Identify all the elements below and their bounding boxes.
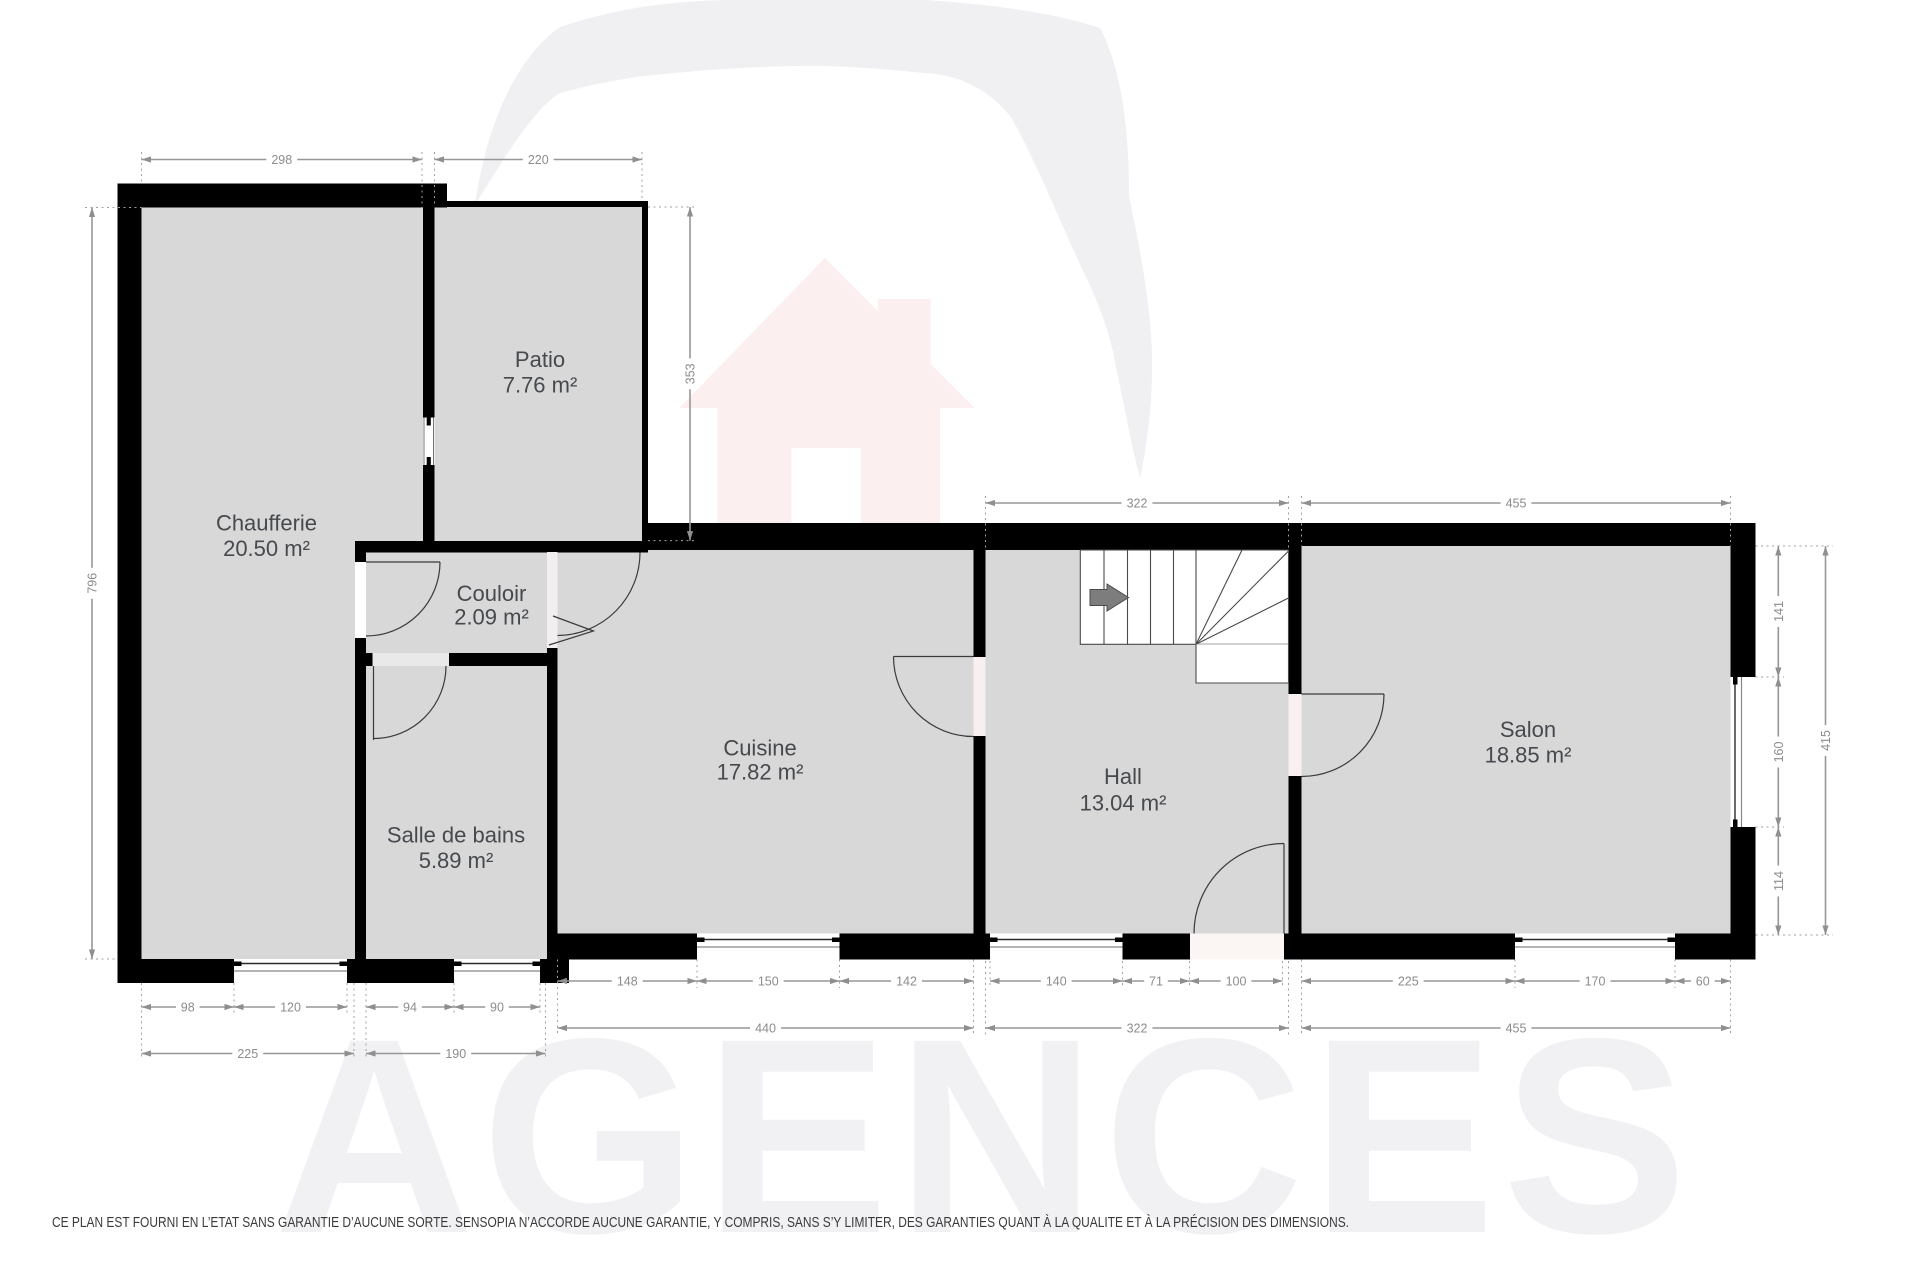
svg-text:190: 190 [445,1047,466,1061]
svg-text:440: 440 [755,1022,776,1036]
svg-text:225: 225 [1398,975,1419,989]
svg-text:225: 225 [237,1047,258,1061]
svg-text:220: 220 [528,153,549,167]
svg-text:141: 141 [1772,601,1786,622]
svg-text:94: 94 [403,1001,417,1015]
svg-text:Cuisine: Cuisine [723,736,796,761]
svg-text:142: 142 [896,975,917,989]
svg-text:170: 170 [1585,975,1606,989]
svg-text:90: 90 [490,1001,504,1015]
svg-text:322: 322 [1127,1022,1148,1036]
svg-text:Couloir: Couloir [457,581,527,606]
svg-text:148: 148 [617,975,638,989]
svg-text:Salon: Salon [1500,717,1556,742]
svg-text:114: 114 [1772,871,1786,891]
svg-text:298: 298 [271,153,292,167]
svg-text:Hall: Hall [1104,764,1142,789]
svg-text:100: 100 [1226,975,1247,989]
svg-text:71: 71 [1149,975,1163,989]
svg-text:796: 796 [86,573,100,594]
svg-text:60: 60 [1696,975,1710,989]
svg-text:Patio: Patio [515,347,565,372]
svg-text:5.89 m²: 5.89 m² [419,848,494,873]
svg-text:Salle de bains: Salle de bains [387,823,525,848]
svg-text:150: 150 [758,975,779,989]
svg-text:98: 98 [181,1001,195,1015]
svg-text:17.82 m²: 17.82 m² [717,760,804,785]
svg-text:455: 455 [1506,497,1527,511]
svg-text:415: 415 [1819,730,1833,751]
svg-text:455: 455 [1506,1022,1527,1036]
svg-text:Chaufferie: Chaufferie [216,511,317,536]
svg-text:18.85 m²: 18.85 m² [1485,743,1572,768]
svg-text:353: 353 [684,363,698,384]
svg-text:120: 120 [280,1001,301,1015]
svg-text:2.09 m²: 2.09 m² [454,605,529,630]
svg-text:AGENCES: AGENCES [274,980,1694,1280]
svg-text:322: 322 [1127,497,1148,511]
svg-text:7.76 m²: 7.76 m² [503,373,578,398]
svg-text:140: 140 [1046,975,1067,989]
svg-text:20.50 m²: 20.50 m² [223,536,310,561]
svg-text:160: 160 [1772,742,1786,763]
svg-text:CE PLAN EST FOURNI EN L’ETAT S: CE PLAN EST FOURNI EN L’ETAT SANS GARANT… [52,1214,1349,1231]
svg-text:13.04 m²: 13.04 m² [1080,791,1167,816]
